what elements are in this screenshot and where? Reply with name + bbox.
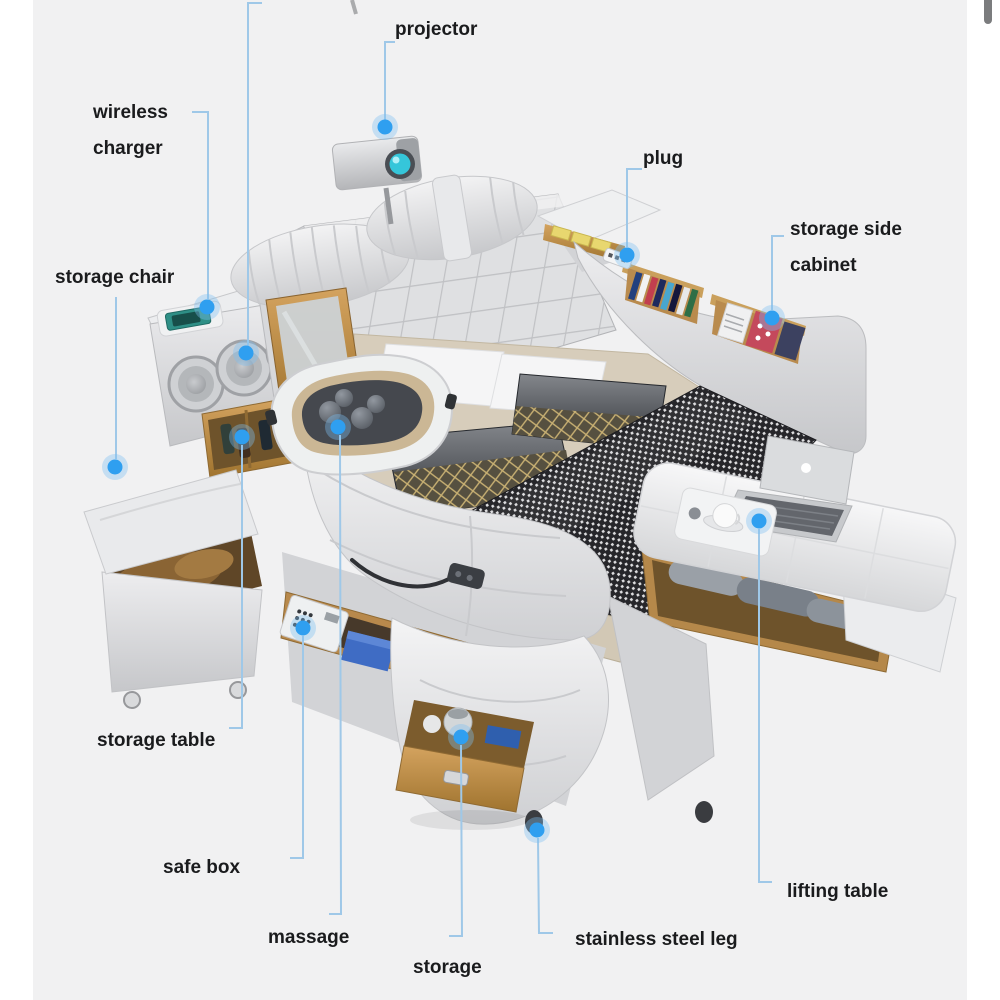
storage-chair-ottoman: [84, 470, 262, 708]
dot-storage: [448, 724, 474, 750]
dot-speaker: [233, 340, 259, 366]
label-line: cabinet: [790, 248, 902, 284]
label-plug: plug: [643, 147, 683, 171]
label-line: charger: [93, 131, 168, 167]
right-white-margin: [967, 0, 1000, 1000]
label-line: storage side: [790, 212, 902, 248]
chrome-foot: [124, 692, 140, 708]
projector-device: [332, 136, 422, 191]
dot-storage-chair: [102, 454, 128, 480]
label-storage-chair: storage chair: [55, 266, 174, 290]
label-storage-table: storage table: [97, 729, 215, 753]
dot-plug: [614, 242, 640, 268]
dot-projector: [372, 114, 398, 140]
dot-storage-side-cabinet: [759, 305, 785, 331]
dot-massage: [325, 414, 351, 440]
label-line: wireless: [93, 95, 168, 131]
dot-safe-box: [290, 615, 316, 641]
label-massage: massage: [268, 926, 349, 950]
label-lifting-table: lifting table: [787, 880, 888, 904]
dot-stainless-steel-leg: [524, 817, 550, 843]
steel-leg: [695, 801, 713, 823]
label-stainless-steel-leg: stainless steel leg: [575, 928, 738, 952]
label-storage-side-cabinet: storage side cabinet: [790, 212, 902, 284]
dot-lifting-table: [746, 508, 772, 534]
left-white-margin: [0, 0, 33, 1000]
scrollbar-thumb[interactable]: [984, 0, 992, 24]
smart-bed-feature-diagram: projector wireless charger plug storage …: [0, 0, 1000, 1000]
label-safe-box: safe box: [163, 856, 240, 880]
dot-wireless-charger: [194, 294, 220, 320]
label-storage: storage: [413, 956, 482, 980]
chrome-foot: [230, 682, 246, 698]
label-projector: projector: [395, 18, 477, 42]
label-wireless-charger: wireless charger: [93, 95, 168, 167]
dot-storage-table: [229, 424, 255, 450]
